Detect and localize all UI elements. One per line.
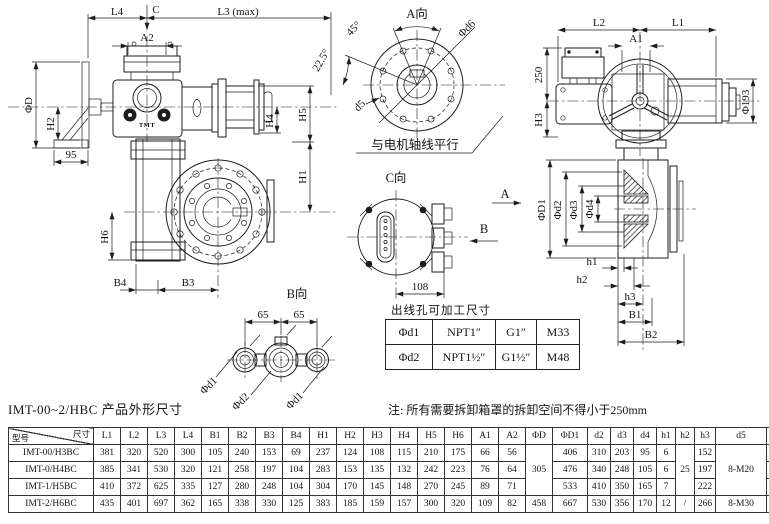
dim-cell: 104 <box>283 479 310 496</box>
dim-cell: / <box>676 496 695 513</box>
dim-cell: 109 <box>472 496 499 513</box>
dim-cell: 153 <box>337 462 364 479</box>
outlet-cell: M48 <box>537 345 580 370</box>
dim-label-l1: L1 <box>672 17 684 29</box>
dim-label-65-left: 65 <box>258 309 270 321</box>
dim-label-phid4: Φd4 <box>584 199 596 219</box>
view-b-title: B向 <box>287 286 308 301</box>
dim-table-body: IMT-00/H3BC38132052030010524015369237124… <box>9 445 769 513</box>
dim-cell: 125 <box>283 496 310 513</box>
dim-label-phi193: Φ193 <box>740 89 752 114</box>
dim-cell: 248 <box>611 462 634 479</box>
dim-column-header: H4 <box>391 428 418 445</box>
dim-label-c: C <box>152 4 159 16</box>
dim-label-h2-sec: h2 <box>577 274 588 286</box>
dim-column-header: B4 <box>283 428 310 445</box>
dim-label-l2: L2 <box>593 17 605 29</box>
dim-cell: 121 <box>202 462 229 479</box>
dim-cell: 240 <box>229 445 256 462</box>
dim-cell: 320 <box>175 462 202 479</box>
dim-cell: 372 <box>121 479 148 496</box>
dim-column-header: L3 <box>148 428 175 445</box>
dim-label-h1-sec: h1 <box>587 256 598 268</box>
dim-label-h1: H1 <box>297 170 309 183</box>
dim-cell: 6 <box>657 462 676 479</box>
corner-cell: 尺寸 型号 <box>9 428 94 445</box>
dim-cell: 280 <box>229 479 256 496</box>
dim-column-header: h2 <box>676 428 695 445</box>
view-a: A向 Φd6 45° 22.5° d5 与电机轴线平行 <box>310 6 505 153</box>
view-c-title: C向 <box>386 170 407 185</box>
dim-label-h3: H3 <box>533 113 545 127</box>
dim-cell: 530 <box>588 496 611 513</box>
corner-label-model: 型号 <box>12 432 29 444</box>
dim-label-95: 95 <box>66 149 78 161</box>
dim-cell: 105 <box>634 462 657 479</box>
dim-cell: 25 <box>676 445 695 496</box>
dim-cell: 362 <box>175 496 202 513</box>
dim-cell: 350 <box>611 479 634 496</box>
dim-label-b3: B3 <box>182 277 195 289</box>
dim-table-row: IMT-1/H5BC410372625335127280248104304170… <box>9 479 769 496</box>
dim-cell: 237 <box>310 445 337 462</box>
dim-cell: 410 <box>588 479 611 496</box>
dim-cell: 71 <box>499 479 526 496</box>
dim-label-h4: H4 <box>264 114 276 128</box>
dim-label-d5: d5 <box>352 97 369 114</box>
dim-cell: 530 <box>148 462 175 479</box>
view-a-note: 与电机轴线平行 <box>371 137 459 152</box>
dim-label-h5: H5 <box>297 108 309 122</box>
dim-column-header: H1 <box>310 428 337 445</box>
dim-label-a1: A1 <box>629 33 642 45</box>
dim-label-h2: H2 <box>45 117 57 130</box>
dim-column-header: h1 <box>657 428 676 445</box>
dim-column-header: L1 <box>94 428 121 445</box>
dim-label-b4: B4 <box>114 277 127 289</box>
dim-label-phid2-b: Φd2 <box>230 391 252 413</box>
dim-label-250: 250 <box>533 66 545 83</box>
dim-label-65-right: 65 <box>294 309 306 321</box>
dim-cell: 283 <box>310 462 337 479</box>
dim-cell: 104 <box>283 462 310 479</box>
dim-cell: 197 <box>256 462 283 479</box>
dim-cell: 401 <box>121 496 148 513</box>
dim-cell: 135 <box>364 462 391 479</box>
dim-cell: 476 <box>553 462 588 479</box>
dim-column-header: ΦD1 <box>553 428 588 445</box>
engineering-drawing-sheet: TMT L4 C L3 (max) A2 ΦD H2 95 <box>0 0 769 524</box>
dim-cell: 625 <box>148 479 175 496</box>
dim-label-h3-sec: h3 <box>625 291 637 303</box>
outlet-cell: NPT1″ <box>433 320 496 345</box>
dim-cell: 6 <box>657 445 676 462</box>
dim-cell: 533 <box>553 479 588 496</box>
dim-label-h6: H6 <box>99 230 111 244</box>
dim-label-phid1-right: Φd1 <box>284 390 306 412</box>
dim-cell: 7 <box>657 479 676 496</box>
dim-cell: 170 <box>337 479 364 496</box>
outlet-cell: G1″ <box>496 320 537 345</box>
dim-cell: 152 <box>695 445 716 462</box>
dim-cell: 320 <box>445 496 472 513</box>
corner-label-size: 尺寸 <box>73 428 90 440</box>
dim-cell: 69 <box>283 445 310 462</box>
dim-cell: 165 <box>634 479 657 496</box>
dim-cell: 56 <box>499 445 526 462</box>
dim-column-header: A2 <box>499 428 526 445</box>
dim-cell: 697 <box>148 496 175 513</box>
dim-cell: 170 <box>634 496 657 513</box>
dim-label-phid1-cap: ΦD1 <box>536 199 548 220</box>
dim-column-header: d4 <box>634 428 657 445</box>
dim-label-phid1-left: Φd1 <box>198 375 220 397</box>
dim-cell: 248 <box>256 479 283 496</box>
outlet-cell: Φd2 <box>386 345 433 370</box>
dim-cell: 667 <box>553 496 588 513</box>
outlet-table-title: 出线孔可加工尺寸 <box>391 302 491 318</box>
dim-cell: 127 <box>202 479 229 496</box>
dim-column-header: H5 <box>418 428 445 445</box>
outlet-row: Φd2NPT1½″G1½″M48 <box>386 345 580 370</box>
dim-cell: 335 <box>175 479 202 496</box>
dim-cell: 66 <box>472 445 499 462</box>
dim-cell: 8-M30 <box>716 496 767 513</box>
side-view: TMT <box>8 36 338 298</box>
dim-column-header: B1 <box>202 428 229 445</box>
dim-column-header: h3 <box>695 428 716 445</box>
dim-cell: 381 <box>94 445 121 462</box>
model-cell: IMT-2/H6BC <box>9 496 94 513</box>
dim-cell: 410 <box>94 479 121 496</box>
dim-cell: 245 <box>445 479 472 496</box>
dim-cell: 385 <box>94 462 121 479</box>
front-view: L2 L1 A1 250 H3 Φ193 <box>533 17 762 160</box>
dim-label-phid6: Φd6 <box>456 18 478 40</box>
dim-cell: 175 <box>445 445 472 462</box>
dim-cell: 520 <box>148 445 175 462</box>
dim-table-row: IMT-0/H4BC385341530320121258197104283153… <box>9 462 769 479</box>
dim-cell: 95 <box>634 445 657 462</box>
dim-label-phid2-sec: Φd2 <box>552 200 564 219</box>
dim-cell: 320 <box>121 445 148 462</box>
dim-cell: 132 <box>391 462 418 479</box>
outlet-cell: Φd1 <box>386 320 433 345</box>
dim-cell: 165 <box>202 496 229 513</box>
dim-column-header: d2 <box>588 428 611 445</box>
view-c: C向 108 B <box>347 170 498 300</box>
dim-cell: 458 <box>526 496 553 513</box>
dim-cell: 8-M20 <box>716 445 767 496</box>
dim-cell: 270 <box>418 479 445 496</box>
dim-cell: 82 <box>499 496 526 513</box>
dim-cell: 145 <box>364 479 391 496</box>
view-a-title: A向 <box>406 6 428 21</box>
model-cell: IMT-0/H4BC <box>9 462 94 479</box>
dim-cell: 108 <box>364 445 391 462</box>
product-caption: IMT-00~2/HBC 产品外形尺寸 <box>8 399 183 418</box>
dim-column-header: L2 <box>121 428 148 445</box>
dim-cell: 203 <box>611 445 634 462</box>
outlet-cell: G1½″ <box>496 345 537 370</box>
dim-label-108: 108 <box>412 281 429 293</box>
dim-column-header: H6 <box>445 428 472 445</box>
brand-logo: TMT <box>139 122 155 129</box>
outlet-row: Φd1NPT1″G1″M33 <box>386 320 580 345</box>
dim-label-b1-sec: B1 <box>629 309 642 321</box>
outlet-cell: M33 <box>537 320 580 345</box>
dim-cell: 242 <box>418 462 445 479</box>
dim-cell: 89 <box>472 479 499 496</box>
dim-table-header-row: 尺寸 型号 L1L2L3L4B1B2B3B4H1H2H3H4H5H6A1A2ΦD… <box>9 428 769 445</box>
dim-column-header: ΦD <box>526 428 553 445</box>
dim-cell: 12 <box>657 496 676 513</box>
dim-cell: 435 <box>94 496 121 513</box>
dim-cell: 222 <box>695 479 716 496</box>
dim-label-phid: ΦD <box>23 97 35 113</box>
dim-cell: 157 <box>391 496 418 513</box>
dim-cell: 300 <box>418 496 445 513</box>
dim-label-a2: A2 <box>140 32 153 44</box>
note-caption: 注: 所有需要拆卸箱罩的拆卸空间不得小于250mm <box>388 401 647 418</box>
dim-table-row: IMT-2/H6BC435401697362165338330125383185… <box>9 496 769 513</box>
dim-cell: 258 <box>229 462 256 479</box>
dim-cell: 304 <box>310 479 337 496</box>
dim-column-header: d3 <box>611 428 634 445</box>
dim-cell: 356 <box>611 496 634 513</box>
dim-cell: 340 <box>588 462 611 479</box>
dim-cell: 197 <box>695 462 716 479</box>
dim-column-header: A1 <box>472 428 499 445</box>
dim-column-header: L4 <box>175 428 202 445</box>
outlet-table: Φd1NPT1″G1″M33Φd2NPT1½″G1½″M48 <box>385 319 580 370</box>
dim-cell: 76 <box>472 462 499 479</box>
dim-cell: 305 <box>526 445 553 496</box>
dim-label-phid3: Φd3 <box>568 200 580 220</box>
view-a-arrow-label: A <box>500 187 509 201</box>
dim-cell: 115 <box>391 445 418 462</box>
outlet-table-body: Φd1NPT1″G1″M33Φd2NPT1½″G1½″M48 <box>386 320 580 370</box>
dim-cell: 310 <box>588 445 611 462</box>
dim-table-row: IMT-00/H3BC38132052030010524015369237124… <box>9 445 769 462</box>
dim-label-l4: L4 <box>111 6 124 18</box>
model-cell: IMT-1/H5BC <box>9 479 94 496</box>
dim-cell: 341 <box>121 462 148 479</box>
dim-column-header: H3 <box>364 428 391 445</box>
dim-column-header: B2 <box>229 428 256 445</box>
dim-column-header: H2 <box>337 428 364 445</box>
dim-cell: 300 <box>175 445 202 462</box>
dimension-table: 尺寸 型号 L1L2L3L4B1B2B3B4H1H2H3H4H5H6A1A2ΦD… <box>8 427 769 513</box>
dim-cell: 338 <box>229 496 256 513</box>
dim-label-l3: L3 (max) <box>217 6 259 18</box>
dim-label-225deg: 22.5° <box>310 47 332 73</box>
dim-cell: 406 <box>553 445 588 462</box>
dim-label-45deg: 45° <box>344 19 363 38</box>
outlet-cell: NPT1½″ <box>433 345 496 370</box>
dim-cell: 383 <box>310 496 337 513</box>
dim-cell: 153 <box>256 445 283 462</box>
dim-cell: 105 <box>202 445 229 462</box>
dim-cell: 223 <box>445 462 472 479</box>
dim-cell: 266 <box>695 496 716 513</box>
dim-cell: 159 <box>364 496 391 513</box>
dim-cell: 64 <box>499 462 526 479</box>
dim-label-b2-sec: B2 <box>645 329 658 341</box>
dim-cell: 124 <box>337 445 364 462</box>
view-b-arrow-label: B <box>480 222 488 236</box>
dim-column-header: d5 <box>716 428 767 445</box>
view-b: B向 65 65 Φd1 Φd2 Φd1 <box>198 286 335 413</box>
dim-column-header: B3 <box>256 428 283 445</box>
dim-cell: 185 <box>337 496 364 513</box>
dim-cell: 210 <box>418 445 445 462</box>
model-cell: IMT-00/H3BC <box>9 445 94 462</box>
dim-cell: 148 <box>391 479 418 496</box>
dim-cell: 330 <box>256 496 283 513</box>
